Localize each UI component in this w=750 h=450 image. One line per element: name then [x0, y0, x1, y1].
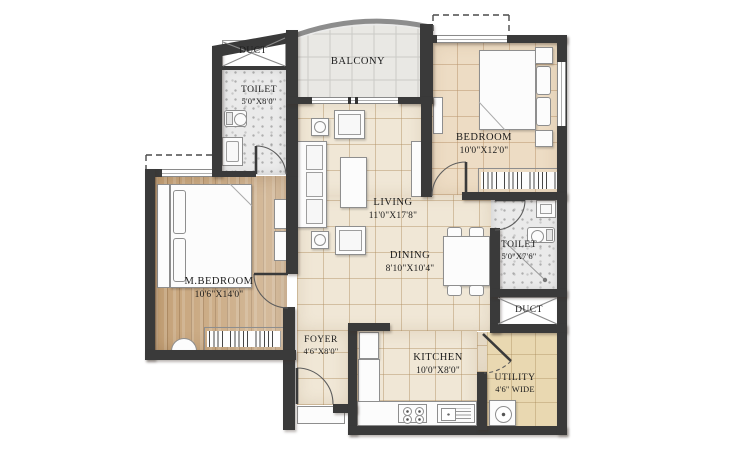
room-label-duct-right: DUCT — [515, 304, 543, 316]
room-name: DUCT — [239, 45, 267, 57]
room-label-foyer: FOYER 4'6"X8'0" — [304, 334, 339, 357]
floor-plan: DUCT TOILET 5'0"X8'0" BALCONY BEDROOM 10… — [0, 0, 750, 450]
room-name: BALCONY — [331, 55, 385, 69]
room-dims: 10'0"X8'0" — [413, 365, 463, 377]
room-name: KITCHEN — [413, 351, 463, 365]
room-name: TOILET — [501, 239, 537, 251]
room-name: M.BEDROOM — [185, 275, 254, 289]
room-name: FOYER — [304, 334, 339, 346]
door-leaf — [483, 334, 511, 361]
room-label-toilet-right: TOILET 5'0"X7'6" — [501, 239, 537, 262]
room-dims: 4'6"X8'0" — [304, 346, 339, 357]
door-arc — [432, 162, 466, 196]
door-arcs — [254, 146, 525, 404]
door-arc — [495, 200, 525, 230]
room-label-master-bedroom: M.BEDROOM 10'6"X14'0" — [185, 275, 254, 301]
room-dims: 5'0"X7'6" — [501, 251, 537, 262]
room-label-bedroom: BEDROOM 10'0"X12'0" — [456, 131, 512, 157]
room-label-dining: DINING 8'10"X10'4" — [386, 249, 435, 275]
door-arc — [254, 274, 288, 308]
room-name: TOILET — [241, 84, 277, 96]
room-dims: 5'0"X8'0" — [241, 96, 277, 107]
room-label-living: LIVING 11'0"X17'8" — [369, 196, 417, 222]
room-dims: 11'0"X17'8" — [369, 210, 417, 222]
room-name: DINING — [386, 249, 435, 263]
room-label-kitchen: KITCHEN 10'0"X8'0" — [413, 351, 463, 377]
door-arc — [297, 368, 333, 404]
shower-drain — [543, 278, 547, 282]
door-arc — [256, 146, 286, 174]
door-track-stop — [355, 97, 358, 104]
dashed-projection — [433, 15, 509, 35]
room-label-toilet-top: TOILET 5'0"X8'0" — [241, 84, 277, 107]
room-name: DUCT — [515, 304, 543, 316]
room-label-duct-top: DUCT — [239, 45, 267, 57]
room-name: BEDROOM — [456, 131, 512, 145]
room-name: LIVING — [369, 196, 417, 210]
door-leaves — [254, 146, 525, 404]
dashed-projection — [146, 155, 216, 169]
room-dims: 8'10"X10'4" — [386, 263, 435, 275]
room-label-utility: UTILITY 4'6" WIDE — [495, 372, 536, 395]
door-track-stop — [348, 97, 351, 104]
room-name: UTILITY — [495, 372, 536, 384]
room-dims: 10'0"X12'0" — [456, 145, 512, 157]
room-dims: 10'6"X14'0" — [185, 289, 254, 301]
room-label-balcony: BALCONY — [331, 55, 385, 69]
room-dims: 4'6" WIDE — [495, 384, 536, 395]
